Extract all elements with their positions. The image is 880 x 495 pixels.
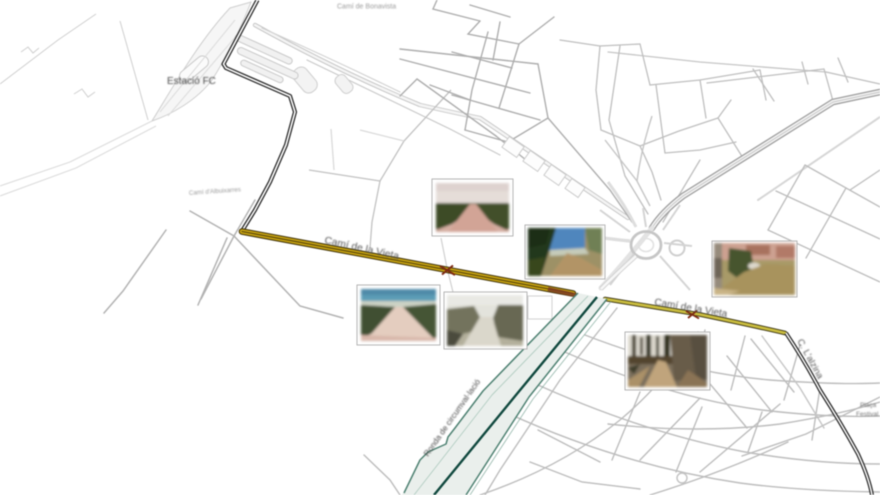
svg-text:Festival: Festival [856, 411, 879, 418]
svg-text:Camí de Bonavista: Camí de Bonavista [337, 4, 396, 11]
svg-text:Plaça: Plaça [860, 402, 877, 409]
svg-text:Estació FC: Estació FC [167, 76, 216, 87]
